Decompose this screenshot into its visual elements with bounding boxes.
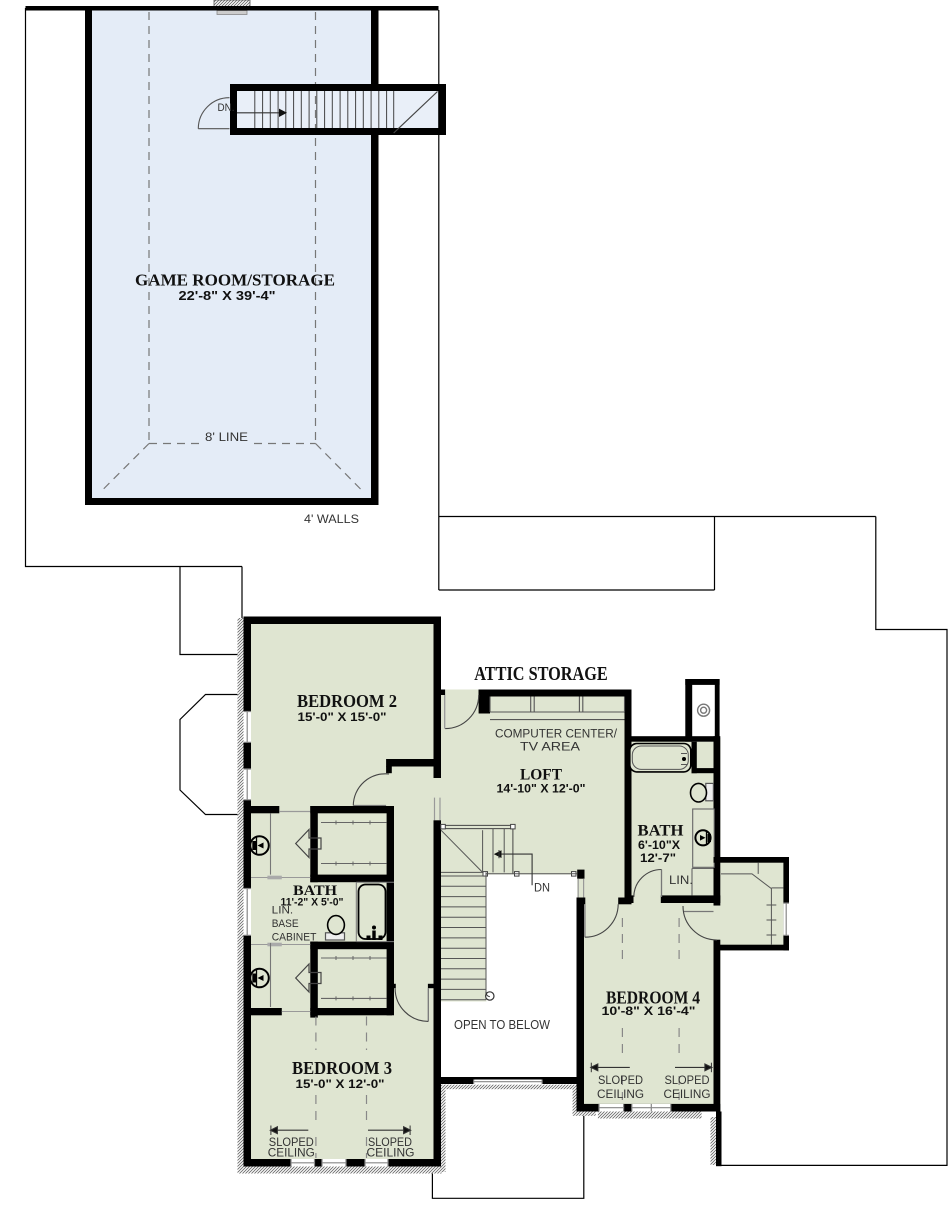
svg-text:CABINET: CABINET [272, 931, 317, 943]
svg-text:CEILING: CEILING [268, 1148, 315, 1160]
svg-text:4' WALLS: 4' WALLS [304, 514, 359, 526]
svg-text:ATTIC STORAGE: ATTIC STORAGE [474, 663, 608, 685]
svg-text:BATH: BATH [638, 823, 684, 840]
svg-text:15'-0" X 15'-0": 15'-0" X 15'-0" [298, 710, 387, 724]
svg-text:BASE: BASE [272, 918, 299, 930]
svg-text:DN.: DN. [218, 102, 235, 114]
svg-text:BEDROOM 2: BEDROOM 2 [297, 691, 397, 711]
svg-text:TV AREA: TV AREA [520, 742, 580, 754]
svg-text:15'-0" X 12'-0": 15'-0" X 12'-0" [296, 1077, 385, 1091]
svg-text:CEILING: CEILING [664, 1089, 711, 1101]
svg-text:LIN.: LIN. [272, 905, 294, 917]
svg-text:BEDROOM 3: BEDROOM 3 [292, 1058, 392, 1078]
svg-text:COMPUTER CENTER/: COMPUTER CENTER/ [495, 729, 618, 741]
svg-text:LIN.: LIN. [669, 875, 693, 887]
svg-text:GAME ROOM/STORAGE: GAME ROOM/STORAGE [135, 271, 335, 290]
svg-text:SLOPED: SLOPED [598, 1075, 643, 1087]
svg-text:6'-10"X: 6'-10"X [638, 838, 680, 852]
svg-text:22'-8" X 39'-4": 22'-8" X 39'-4" [179, 288, 276, 303]
svg-text:DN: DN [534, 883, 550, 895]
svg-text:8' LINE: 8' LINE [205, 432, 248, 444]
svg-text:12'-7": 12'-7" [640, 851, 676, 865]
svg-text:CEILING: CEILING [367, 1148, 415, 1160]
svg-text:SLOPED: SLOPED [665, 1075, 710, 1087]
svg-text:14'-10" X 12'-0": 14'-10" X 12'-0" [497, 782, 586, 796]
svg-text:10'-8" X 16'-4": 10'-8" X 16'-4" [602, 1004, 696, 1018]
svg-text:CEILING: CEILING [597, 1089, 644, 1101]
svg-text:OPEN TO BELOW: OPEN TO BELOW [454, 1017, 551, 1032]
